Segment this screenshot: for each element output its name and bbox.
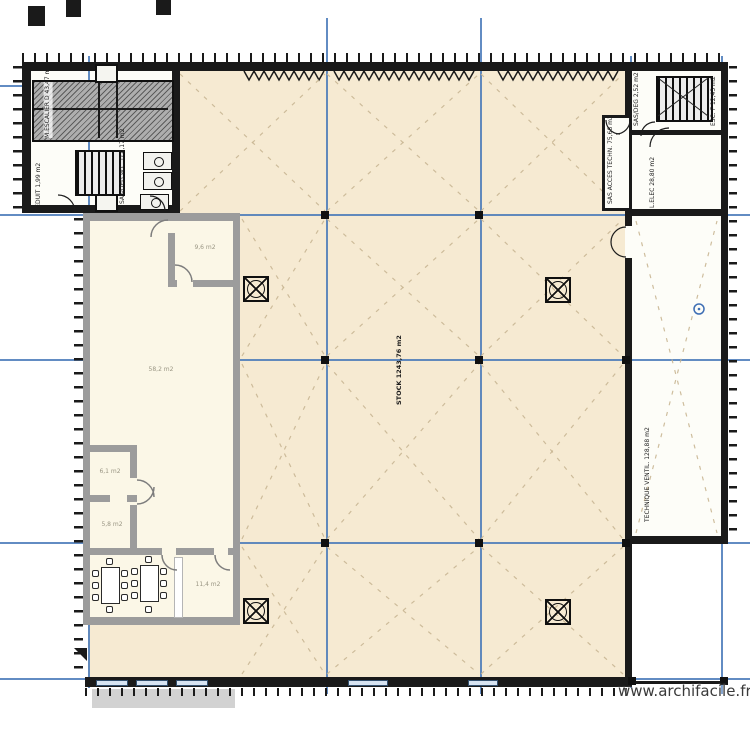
stock-right-wall-door-gap (625, 226, 632, 258)
large-room-bottom-wall (83, 445, 137, 452)
chair (160, 568, 167, 575)
chair (160, 592, 167, 599)
wing-bottom-wall (625, 536, 728, 544)
ventilation-room-top-wall (625, 209, 728, 216)
chair (106, 606, 113, 613)
door-gap (214, 548, 228, 555)
subroom-bottom-wall (193, 280, 240, 287)
chair (92, 570, 99, 577)
drawn-wall-left (83, 213, 90, 625)
chair (121, 570, 128, 577)
window (348, 680, 388, 686)
chair (160, 580, 167, 587)
wc-fixture (143, 172, 172, 190)
room-label-technique-ventil: TECHNIQUE VENTIL. 128,88 m2 (645, 424, 652, 522)
meeting-table (140, 565, 159, 602)
wall-hatch-right (729, 66, 737, 542)
wall-hatch-bottom (85, 688, 632, 696)
escalator-landing-top (95, 64, 118, 83)
column-marker (475, 356, 483, 364)
chair (145, 606, 152, 613)
subroom-bottom-wall (168, 280, 177, 287)
chair (92, 582, 99, 589)
floor-plan: M.ESCALIER D 43,47 m2 REDUIT 1,99 m2 SAS… (0, 0, 750, 750)
wc-fixture (143, 152, 172, 170)
pocket-door (174, 557, 183, 618)
drawn-wall-right (233, 213, 240, 625)
escalator-shaft-line (98, 80, 100, 138)
watermark-link: www.archifacile.fr (618, 682, 750, 700)
area-label-subroom: 9,6 m2 (186, 244, 224, 251)
chair (106, 558, 113, 565)
chair (131, 592, 138, 599)
column-marker (321, 211, 329, 219)
door-gap (110, 495, 127, 502)
room-label-sas-acces: SAS ACCES TECHN. 75,68 m2 (608, 128, 615, 204)
column-marker (321, 356, 329, 364)
smoke-vent-icon (243, 276, 269, 302)
wc-fixture (140, 194, 169, 210)
left-wall (22, 62, 31, 213)
wall-hatch-top (22, 53, 728, 62)
room-label-esc-f: ESC. F 12,43 m2 (711, 80, 718, 126)
chair (131, 568, 138, 575)
escalator-room (32, 80, 174, 142)
column-marker (475, 211, 483, 219)
room-label-l-elec: L.ELEC 28,80 m2 (650, 158, 657, 208)
room-label-machine: M.ESCALIER D 43,47 m2 (44, 82, 53, 138)
escalator-shaft-line (116, 80, 118, 138)
chair (121, 594, 128, 601)
room-label-sas-esc: SAS/DEG 2,52 m2 (634, 78, 641, 126)
scan-artifact (28, 6, 45, 26)
drawn-wall-bottom (83, 617, 240, 625)
door-gap (162, 548, 176, 555)
column-marker (475, 539, 483, 547)
chair (92, 594, 99, 601)
area-label-room-b: 5,8 m2 (94, 521, 130, 528)
column-marker (622, 356, 630, 364)
drawn-wall-top (83, 213, 240, 221)
stock-hall-top (179, 66, 625, 217)
smoke-vent-icon (243, 598, 269, 624)
wall-hatch-left-top (13, 66, 22, 209)
door-swing-mark (74, 648, 87, 661)
wing-stairs-bottom-wall (632, 130, 721, 135)
chair (145, 556, 152, 563)
top-wall (22, 62, 728, 71)
chair (131, 580, 138, 587)
scan-artifact (66, 0, 81, 17)
window (176, 680, 208, 686)
column-marker (321, 539, 329, 547)
escalator-mid-line (34, 108, 168, 110)
stairs-entrance-block (75, 150, 125, 196)
window (468, 680, 498, 686)
wall-hatch-left-main (74, 218, 83, 675)
window (96, 680, 128, 686)
area-label-room-c: 11,4 m2 (190, 581, 226, 588)
window (136, 680, 168, 686)
scan-artifact (156, 0, 171, 15)
area-label-large-room: 58,2 m2 (138, 366, 184, 373)
area-label-room-a: 6,1 m2 (92, 468, 128, 475)
smoke-vent-icon (545, 599, 571, 625)
room-label-sas-wc: SAS/DEG W.C. D 4,17 m2 (120, 154, 127, 204)
smoke-vent-icon (545, 277, 571, 303)
column-marker (622, 539, 630, 547)
wing-right-wall (721, 62, 728, 544)
room-label-reduit: REDUIT 1,99 m2 (36, 170, 43, 212)
stairs-esc-f (656, 76, 713, 122)
meeting-table (101, 567, 120, 604)
room-label-stock: STOCK 1243,76 m2 (396, 350, 403, 405)
subroom-left-wall (168, 233, 175, 287)
chair (121, 582, 128, 589)
